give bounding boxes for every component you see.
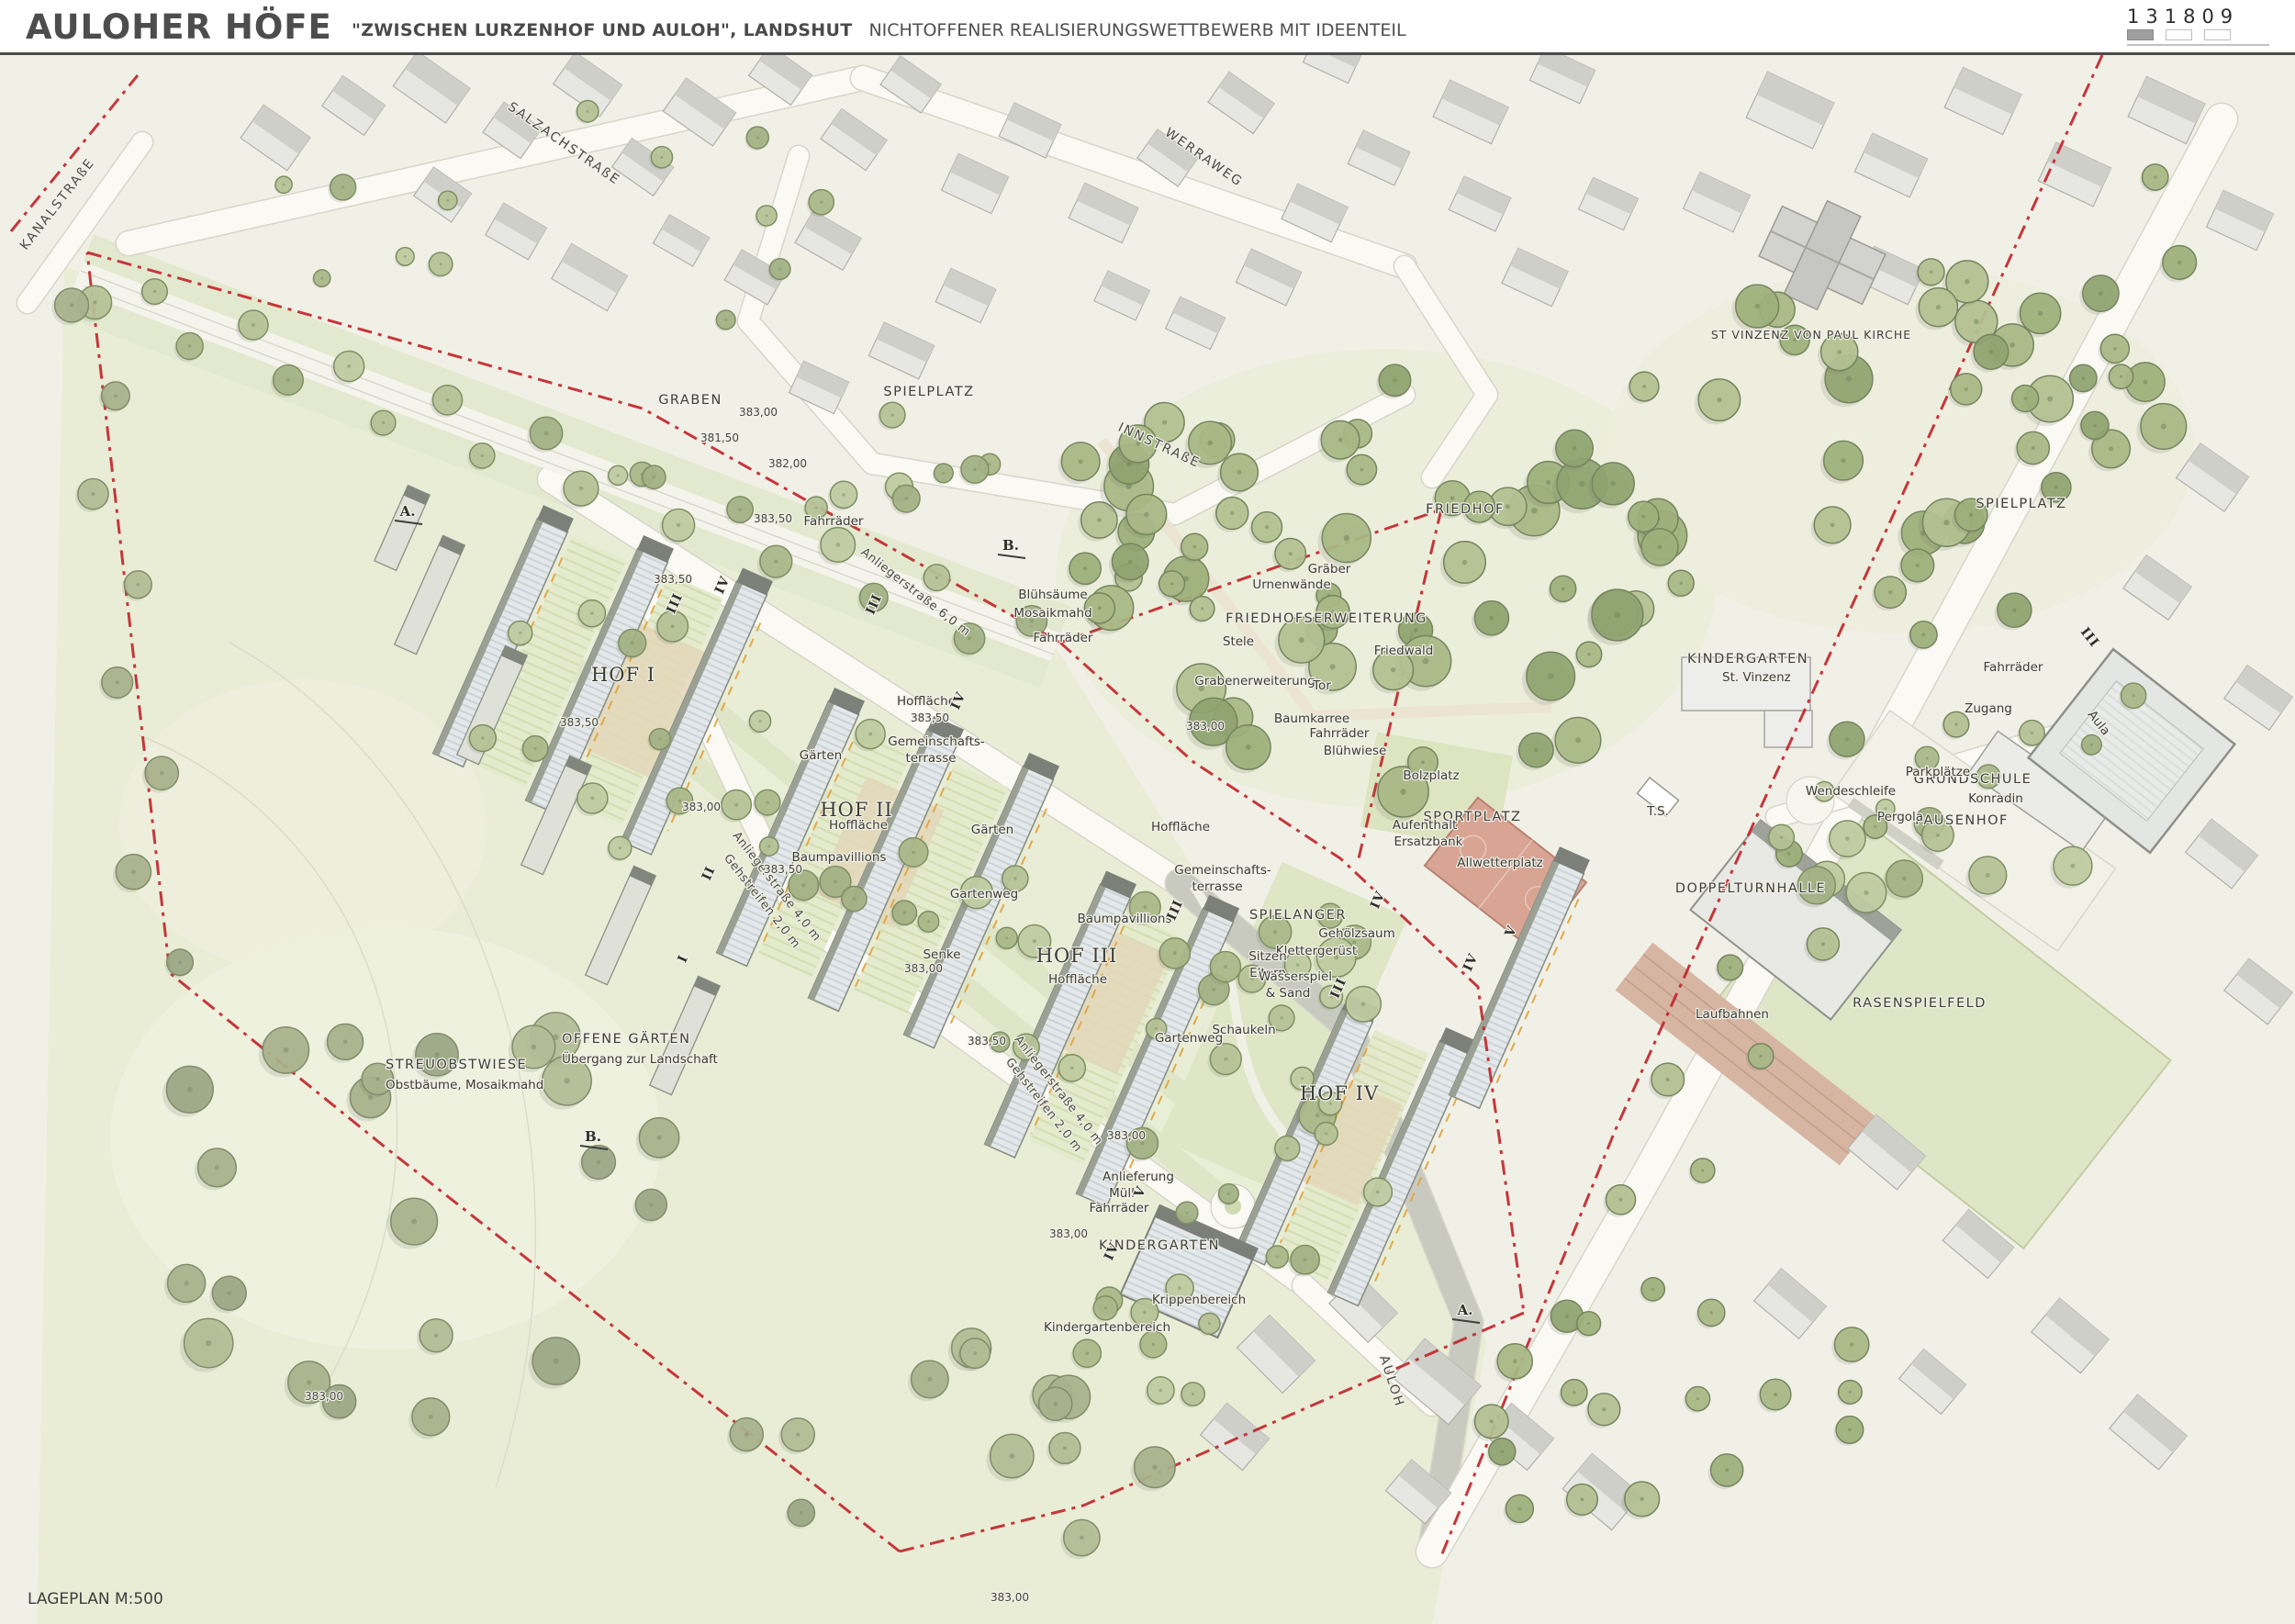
map-label: Sitzen — [1248, 949, 1287, 964]
map-label: terrasse — [905, 751, 956, 766]
map-label: SPIELPLATZ — [883, 385, 974, 399]
entry-rule — [2127, 44, 2269, 46]
entry-number: 131809 — [2127, 6, 2269, 28]
map-label: DOPPELTURNHALLE — [1675, 881, 1826, 896]
map-label: 383,00 — [1107, 1129, 1146, 1142]
map-label: A. — [1457, 1302, 1473, 1318]
map-label: HOF I — [591, 664, 655, 686]
map-label: Gehölzsaum — [1318, 926, 1394, 941]
map-label: & Sand — [1266, 986, 1311, 1001]
map-label: Grabenerweiterung — [1194, 674, 1315, 689]
map-label: Hoffläche — [829, 818, 888, 833]
map-label: Pergola — [1877, 810, 1923, 824]
map-label: Müll — [1109, 1186, 1135, 1201]
map-label: PAUSENHOF — [1915, 813, 2009, 828]
map-label: A. — [399, 503, 416, 520]
map-label: Gartenweg — [1155, 1031, 1223, 1046]
map-label: HOF IV — [1300, 1082, 1379, 1104]
map-label: Laufbahnen — [1696, 1007, 1769, 1022]
map-label: Allwetterplatz — [1457, 856, 1543, 870]
map-label: Fahrräder — [1310, 726, 1370, 741]
map-label: Baumpavillions — [1078, 912, 1172, 926]
map-label: 383,50 — [560, 716, 599, 729]
map-label: 383,00 — [991, 1591, 1029, 1604]
map-label: 383,00 — [904, 962, 943, 975]
map-label: SPIELANGER — [1249, 908, 1347, 923]
map-label: Baumkarree — [1274, 711, 1349, 726]
map-label: FRIEDHOF — [1426, 502, 1505, 517]
map-label: GRABEN — [658, 393, 722, 408]
map-label: Urnenwände — [1252, 577, 1330, 592]
map-label: 383,00 — [682, 801, 721, 813]
entry-number-block: 131809 — [2127, 6, 2269, 46]
map-label: St. Vinzenz — [1722, 670, 1791, 685]
subtitle-location: "ZWISCHEN LURZENHOF UND AULOH", LANDSHUT — [352, 20, 852, 40]
map-label: Krippenbereich — [1152, 1293, 1246, 1307]
map-label: Aufenthalt — [1393, 818, 1458, 833]
map-label: terrasse — [1192, 879, 1242, 894]
siteplan-sheet: KANALSTRAßESALZACHSTRAßEWERRAWEGINNSTRAß… — [0, 0, 2295, 1624]
map-label: Gemeinschafts- — [1174, 863, 1271, 878]
map-label: 383,50 — [754, 512, 792, 525]
map-label: ST VINZENZ VON PAUL KIRCHE — [1711, 328, 1911, 342]
map-label: Hoffläche — [1151, 820, 1210, 834]
map-label: Gemeinschafts- — [888, 734, 985, 749]
map-label: 383,00 — [305, 1390, 343, 1403]
map-label: Blühwiese — [1324, 744, 1387, 758]
map-label: Gärten — [800, 748, 842, 763]
map-label: RASENSPIELFELD — [1853, 996, 1987, 1011]
map-label: Hoffläche — [897, 694, 956, 709]
entry-check-boxes — [2127, 29, 2269, 40]
map-label: Ersatzbank — [1394, 834, 1463, 849]
map-label: Stele — [1223, 634, 1254, 649]
map-label: Hoffläche — [1048, 972, 1107, 987]
sheet-header: AULOHER HÖFE "ZWISCHEN LURZENHOF UND AUL… — [0, 0, 2295, 55]
map-label: Fahrräder — [1984, 660, 2043, 675]
map-label: 383,50 — [764, 863, 802, 876]
check-box-empty — [2166, 29, 2192, 40]
map-label: Wasserspiel — [1259, 969, 1332, 984]
map-label: 382,00 — [768, 457, 807, 470]
map-label: 383,00 — [739, 406, 778, 419]
map-label: Klettergerüst — [1276, 944, 1357, 958]
map-label: Gräber — [1308, 562, 1351, 577]
map-label: Fahrräder — [1034, 631, 1093, 645]
map-label: Obstbäume, Mosaikmahd — [386, 1078, 543, 1092]
map-label: SPIELPLATZ — [1976, 497, 2066, 511]
map-label: HOF III — [1036, 945, 1118, 967]
map-label: B. — [585, 1128, 601, 1145]
check-box-empty — [2204, 29, 2231, 40]
map-label: Friedwald — [1374, 644, 1434, 658]
map-label: 383,00 — [1049, 1227, 1088, 1240]
map-label: Mosaikmahd — [1013, 606, 1092, 621]
map-label: Kindergartenbereich — [1044, 1320, 1170, 1335]
check-box-filled — [2127, 29, 2154, 40]
map-label: 383,50 — [911, 711, 949, 724]
map-label: FRIEDHOFSERWEITERUNG — [1226, 611, 1427, 626]
map-label: Bolzplatz — [1403, 768, 1459, 783]
map-label: Fahrräder — [804, 514, 864, 529]
map-label: STREUOBSTWIESE — [386, 1058, 527, 1072]
map-label: Parkplätze — [1906, 765, 1970, 779]
map-label: KINDERGARTEN — [1687, 652, 1808, 666]
project-subtitle: "ZWISCHEN LURZENHOF UND AULOH", LANDSHUT… — [352, 20, 1406, 40]
map-label: Tor — [1312, 678, 1331, 693]
map-label: 381,50 — [700, 431, 739, 444]
project-title: AULOHER HÖFE — [26, 7, 332, 47]
subtitle-competition: NICHTOFFENER REALISIERUNGSWETTBEWERB MIT… — [868, 20, 1405, 40]
map-label: Übergang zur Landschaft — [562, 1050, 718, 1067]
map-label: Konradin — [1968, 791, 2023, 806]
map-label: OFFENE GÄRTEN — [562, 1030, 690, 1047]
map-label: Wendeschleife — [1806, 784, 1896, 799]
siteplan-map: KANALSTRAßESALZACHSTRAßEWERRAWEGINNSTRAß… — [0, 0, 2295, 1624]
map-label: 383,50 — [968, 1035, 1006, 1047]
map-label: Senke — [923, 947, 960, 962]
map-label: Anlieferung — [1103, 1170, 1174, 1184]
map-label: Gärten — [971, 823, 1013, 837]
map-label: Zugang — [1965, 701, 2012, 716]
map-label: T.S. — [1646, 804, 1669, 819]
map-label: B. — [1002, 537, 1019, 554]
map-label: 383,50 — [654, 573, 692, 586]
scale-label: LAGEPLAN M:500 — [28, 1590, 163, 1608]
map-label: Gartenweg — [950, 887, 1018, 902]
map-label: Baumpavillions — [792, 850, 887, 865]
map-label: Blühsäume — [1018, 588, 1087, 602]
map-label: Fahrräder — [1090, 1201, 1149, 1215]
map-label: 383,00 — [1186, 720, 1225, 733]
